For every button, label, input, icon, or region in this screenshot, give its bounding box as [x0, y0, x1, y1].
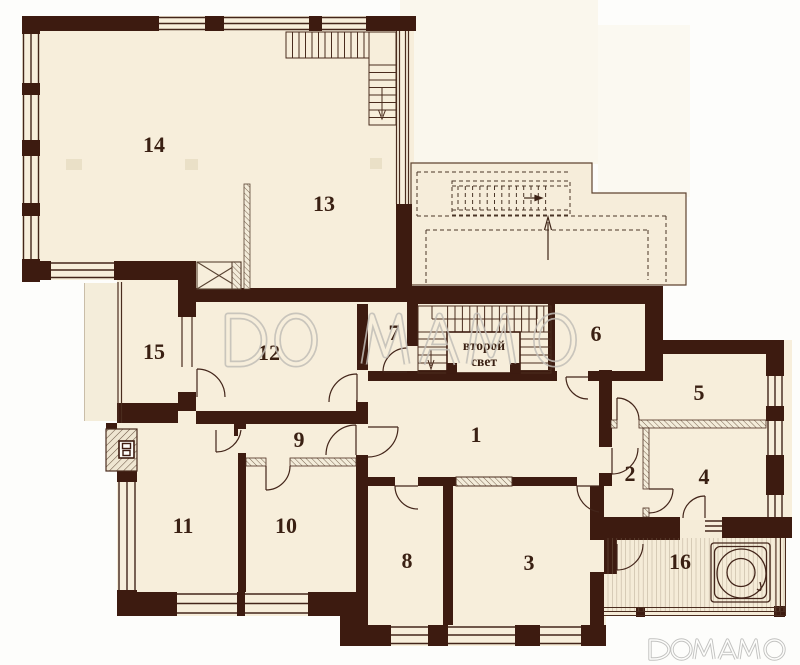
svg-text:9: 9 [294, 427, 305, 452]
svg-text:13: 13 [313, 191, 335, 216]
svg-text:14: 14 [143, 132, 165, 157]
svg-text:11: 11 [173, 513, 194, 538]
svg-text:16: 16 [669, 549, 691, 574]
svg-text:3: 3 [524, 550, 535, 575]
svg-text:15: 15 [143, 339, 165, 364]
svg-text:1: 1 [471, 422, 482, 447]
svg-text:4: 4 [699, 464, 710, 489]
svg-text:5: 5 [694, 380, 705, 405]
svg-text:8: 8 [402, 548, 413, 573]
svg-text:10: 10 [275, 513, 297, 538]
svg-text:2: 2 [625, 461, 636, 486]
